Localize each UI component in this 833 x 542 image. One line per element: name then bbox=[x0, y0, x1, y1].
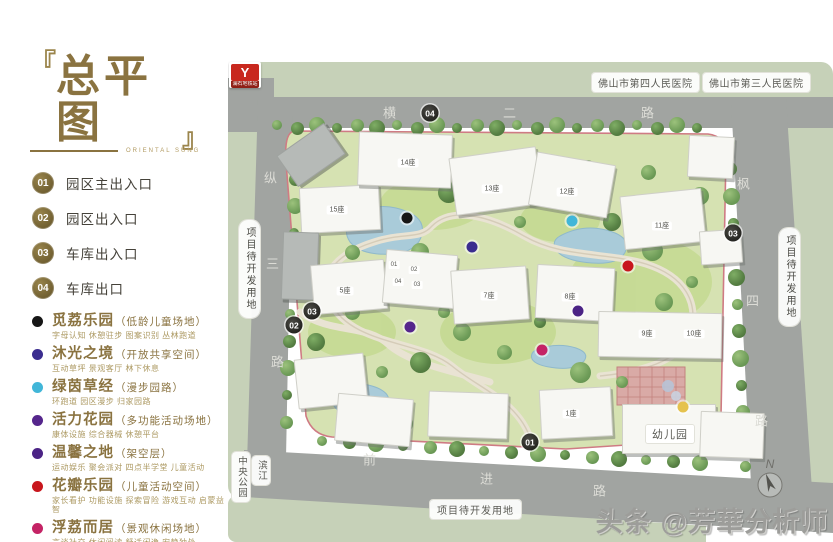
entry-label: 园区出入口 bbox=[66, 208, 139, 228]
dev-land-label-bottom: 项目待开发用地 bbox=[430, 500, 521, 519]
page: Y 澜石地铁站 佛山市第四人民医院 佛山市第三人民医院 项目待开发用地 项目待开… bbox=[0, 0, 833, 542]
park-label-central: 中央公园 bbox=[232, 452, 250, 502]
legend-color-dot bbox=[32, 382, 43, 393]
area-legend-head: 绿茵草经（漫步园路） bbox=[32, 379, 228, 396]
tree-icon bbox=[376, 366, 388, 378]
watermark-handle: @芳華分析师 bbox=[661, 507, 828, 537]
compass-rose-icon bbox=[755, 470, 785, 500]
title-bracket-close: 』 bbox=[182, 132, 208, 146]
area-legend-item: 绿茵草经（漫步园路）环跑道 园区漫步 归家园路 bbox=[32, 379, 228, 406]
tree-icon bbox=[667, 455, 680, 468]
road-name-label: 路 bbox=[755, 411, 769, 430]
tree-icon bbox=[570, 362, 591, 383]
entry-legend-item: 02园区出入口 bbox=[32, 207, 228, 229]
tree-icon bbox=[392, 120, 402, 130]
tree-icon bbox=[351, 119, 364, 132]
building-number-label: 8座 bbox=[562, 293, 579, 302]
area-legend-head: 沐光之境（开放共享空间） bbox=[32, 346, 228, 363]
metro-station-name: 澜石地铁站 bbox=[231, 81, 259, 88]
dev-land-label-left: 项目待开发用地 bbox=[239, 220, 260, 318]
area-legend-head: 浮荔而居（景观休闲场地） bbox=[32, 520, 228, 537]
tree-icon bbox=[641, 165, 656, 180]
road-name-label: 二 bbox=[503, 103, 517, 122]
legend-color-dot bbox=[32, 448, 43, 459]
area-legend-head: 觅荔乐园（低龄儿童场地） bbox=[32, 313, 228, 330]
building bbox=[619, 188, 706, 250]
area-legend-title: 觅荔乐园（低龄儿童场地） bbox=[52, 313, 207, 330]
area-legend-head: 花瓣乐园（儿童活动空间） bbox=[32, 478, 228, 495]
entry-legend-item: 04车库出口 bbox=[32, 277, 228, 299]
building-number-label: 12座 bbox=[557, 188, 578, 197]
area-legend-desc: 言谈社交 休闲阅读 舒适闲逸 安静独处 bbox=[52, 538, 228, 542]
building bbox=[427, 391, 509, 440]
tree-icon bbox=[632, 120, 642, 130]
tree-icon bbox=[669, 117, 685, 133]
entrance-marker: 02 bbox=[286, 317, 303, 334]
road-name-label: 枫 bbox=[737, 174, 751, 193]
tree-icon bbox=[497, 345, 512, 360]
area-legend: 觅荔乐园（低龄儿童场地）字母认知 休憩驻步 图案识别 丛林跑道沐光之境（开放共享… bbox=[32, 313, 228, 542]
building bbox=[448, 146, 543, 216]
area-legend-item: 花瓣乐园（儿童活动空间）家长看护 功能设施 探索冒险 游戏互动 启蒙益智 bbox=[32, 478, 228, 514]
area-legend-title: 活力花园（多功能活动场地） bbox=[52, 412, 219, 429]
entry-number-badge: 04 bbox=[32, 277, 54, 299]
legend-color-dot bbox=[32, 415, 43, 426]
tree-icon bbox=[616, 376, 628, 388]
entrance-marker: 04 bbox=[422, 105, 439, 122]
area-legend-desc: 康体设施 综合器械 休憩平台 bbox=[52, 430, 228, 439]
tree-icon bbox=[452, 123, 462, 133]
tree-icon bbox=[692, 123, 702, 133]
north-compass: N bbox=[750, 458, 790, 505]
area-legend-head: 活力花园（多功能活动场地） bbox=[32, 412, 228, 429]
road-name-label: 前 bbox=[363, 450, 377, 469]
tree-icon bbox=[453, 323, 471, 341]
tree-icon bbox=[471, 119, 484, 132]
tree-icon bbox=[728, 269, 745, 286]
hospital-label-3rd: 佛山市第三人民医院 bbox=[703, 73, 810, 92]
area-legend-title: 浮荔而居（景观休闲场地） bbox=[52, 520, 207, 537]
unit-number-label: 04 bbox=[393, 278, 404, 286]
dev-land-label-right: 项目待开发用地 bbox=[779, 228, 800, 326]
area-legend-desc: 互动草坪 景观客厅 林下休息 bbox=[52, 364, 228, 373]
activity-area-dot bbox=[405, 322, 416, 333]
area-legend-desc: 环跑道 园区漫步 归家园路 bbox=[52, 397, 228, 406]
road-name-label: 路 bbox=[641, 103, 655, 122]
entry-legend: 01园区主出入口02园区出入口03车库出入口04车库出口 bbox=[32, 172, 228, 299]
building-number-label: 9座 bbox=[639, 330, 656, 339]
tree-icon bbox=[410, 352, 431, 373]
area-legend-desc: 字母认知 休憩驻步 图案识别 丛林跑道 bbox=[52, 331, 228, 340]
title-bracket-open: 『 bbox=[30, 54, 56, 74]
area-legend-title: 花瓣乐园（儿童活动空间） bbox=[52, 478, 207, 495]
building-number-label: 15座 bbox=[327, 206, 348, 215]
building bbox=[687, 135, 735, 179]
unit-number-label: 01 bbox=[389, 261, 400, 269]
unit-number-label: 03 bbox=[412, 281, 423, 289]
area-legend-note: （架空层） bbox=[115, 448, 173, 460]
watermark: 头条@芳華分析师 bbox=[596, 500, 828, 539]
entry-legend-item: 03车库出入口 bbox=[32, 242, 228, 264]
building-number-label: 11座 bbox=[652, 222, 672, 231]
entry-number-badge: 02 bbox=[32, 207, 54, 229]
tree-icon bbox=[424, 441, 437, 454]
tree-icon bbox=[549, 117, 565, 133]
tree-icon bbox=[609, 120, 625, 136]
entry-number-badge: 03 bbox=[32, 242, 54, 264]
unit-number-label: 02 bbox=[409, 266, 420, 274]
area-legend-note: （景观休闲场地） bbox=[115, 523, 207, 535]
title-block: 『 总平图 』 ORIENTAL SUNG bbox=[30, 54, 208, 154]
metro-logo-icon: Y bbox=[231, 64, 259, 81]
area-legend-note: （儿童活动空间） bbox=[115, 481, 207, 493]
activity-area-dot bbox=[537, 345, 548, 356]
legend-color-dot bbox=[32, 481, 43, 492]
tree-icon bbox=[345, 245, 360, 260]
tree-icon bbox=[317, 436, 327, 446]
activity-area-dot bbox=[402, 213, 413, 224]
building-number-label: 5座 bbox=[337, 287, 354, 296]
tree-icon bbox=[307, 333, 325, 351]
area-legend-desc: 运动娱乐 聚会派对 四点半学堂 儿童活动 bbox=[52, 463, 228, 472]
area-legend-item: 觅荔乐园（低龄儿童场地）字母认知 休憩驻步 图案识别 丛林跑道 bbox=[32, 313, 228, 340]
tree-icon bbox=[332, 123, 342, 133]
title-underline bbox=[30, 150, 118, 152]
tree-icon bbox=[586, 451, 599, 464]
area-legend-note: （多功能活动场地） bbox=[115, 415, 219, 427]
kindergarten-label: 幼儿园 bbox=[646, 425, 694, 443]
road-name-label: 路 bbox=[271, 352, 285, 371]
entry-label: 园区主出入口 bbox=[66, 173, 153, 193]
area-legend-title: 绿茵草经（漫步园路） bbox=[52, 379, 184, 396]
tree-icon bbox=[280, 416, 293, 429]
tree-icon bbox=[651, 122, 664, 135]
road-name-label: 纵 bbox=[264, 168, 278, 187]
activity-area-dot bbox=[678, 402, 689, 413]
area-legend-title: 沐光之境（开放共享空间） bbox=[52, 346, 207, 363]
tree-icon bbox=[505, 446, 518, 459]
entrance-marker: 03 bbox=[304, 303, 321, 320]
entry-label: 车库出入口 bbox=[66, 243, 139, 263]
building-number-label: 13座 bbox=[482, 185, 503, 194]
tree-icon bbox=[479, 446, 489, 456]
road-name-label: 三 bbox=[266, 254, 280, 273]
building bbox=[334, 393, 414, 447]
metro-station-logo: Y 澜石地铁站 bbox=[229, 62, 261, 88]
activity-area-dot bbox=[623, 261, 634, 272]
tree-icon bbox=[291, 122, 304, 135]
area-legend-item: 浮荔而居（景观休闲场地）言谈社交 休闲阅读 舒适闲逸 安静独处 bbox=[32, 520, 228, 542]
area-legend-item: 活力花园（多功能活动场地）康体设施 综合器械 休憩平台 bbox=[32, 412, 228, 439]
watermark-brand: 头条 bbox=[596, 507, 652, 537]
area-legend-desc: 家长看护 功能设施 探索冒险 游戏互动 启蒙益智 bbox=[52, 496, 228, 514]
legend-color-dot bbox=[32, 523, 43, 534]
tree-icon bbox=[531, 122, 544, 135]
road-name-label: 路 bbox=[593, 481, 607, 500]
tree-icon bbox=[512, 120, 522, 130]
area-legend-item: 沐光之境（开放共享空间）互动草坪 景观客厅 林下休息 bbox=[32, 346, 228, 373]
tree-icon bbox=[514, 216, 526, 228]
area-legend-head: 温馨之地（架空层） bbox=[32, 445, 228, 462]
entrance-marker: 01 bbox=[522, 434, 539, 451]
entry-label: 车库出口 bbox=[66, 278, 124, 298]
legend-sidebar: 『 总平图 』 ORIENTAL SUNG 01园区主出入口02园区出入口03车… bbox=[0, 0, 228, 542]
entry-number-badge: 01 bbox=[32, 172, 54, 194]
tree-icon bbox=[449, 441, 465, 457]
tree-icon bbox=[283, 335, 296, 348]
area-legend-item: 温馨之地（架空层）运动娱乐 聚会派对 四点半学堂 儿童活动 bbox=[32, 445, 228, 472]
page-title: 总平图 bbox=[56, 54, 182, 146]
tree-icon bbox=[732, 350, 749, 367]
tree-icon bbox=[686, 276, 698, 288]
area-legend-title: 温馨之地（架空层） bbox=[52, 445, 173, 462]
area-legend-note: （低龄儿童场地） bbox=[115, 316, 207, 328]
tree-icon bbox=[572, 123, 582, 133]
tree-icon bbox=[591, 119, 604, 132]
building-number-label: 14座 bbox=[398, 159, 419, 168]
activity-area-dot bbox=[467, 242, 478, 253]
tree-icon bbox=[655, 293, 673, 311]
road-name-label: 进 bbox=[480, 469, 494, 488]
tree-icon bbox=[732, 299, 743, 310]
entrance-marker: 03 bbox=[725, 225, 742, 242]
building-number-label: 1座 bbox=[563, 410, 580, 419]
building-number-label: 7座 bbox=[481, 292, 498, 301]
legend-color-dot bbox=[32, 316, 43, 327]
north-label: N bbox=[750, 458, 790, 470]
tree-icon bbox=[736, 380, 747, 391]
activity-area-dot bbox=[567, 216, 578, 227]
title-subtitle: ORIENTAL SUNG bbox=[126, 148, 200, 154]
activity-area-dot bbox=[573, 306, 584, 317]
hospital-label-4th: 佛山市第四人民医院 bbox=[592, 73, 699, 92]
road-name-label: 四 bbox=[746, 291, 760, 310]
entry-legend-item: 01园区主出入口 bbox=[32, 172, 228, 194]
area-legend-note: （漫步园路） bbox=[115, 382, 184, 394]
building-number-label: 10座 bbox=[684, 330, 705, 339]
area-legend-note: （开放共享空间） bbox=[115, 349, 207, 361]
legend-color-dot bbox=[32, 349, 43, 360]
tree-icon bbox=[272, 120, 282, 130]
tree-icon bbox=[732, 324, 746, 338]
road-name-label: 横 bbox=[383, 103, 397, 122]
park-label-riverside: 滨江 bbox=[252, 456, 270, 485]
tree-icon bbox=[489, 120, 505, 136]
